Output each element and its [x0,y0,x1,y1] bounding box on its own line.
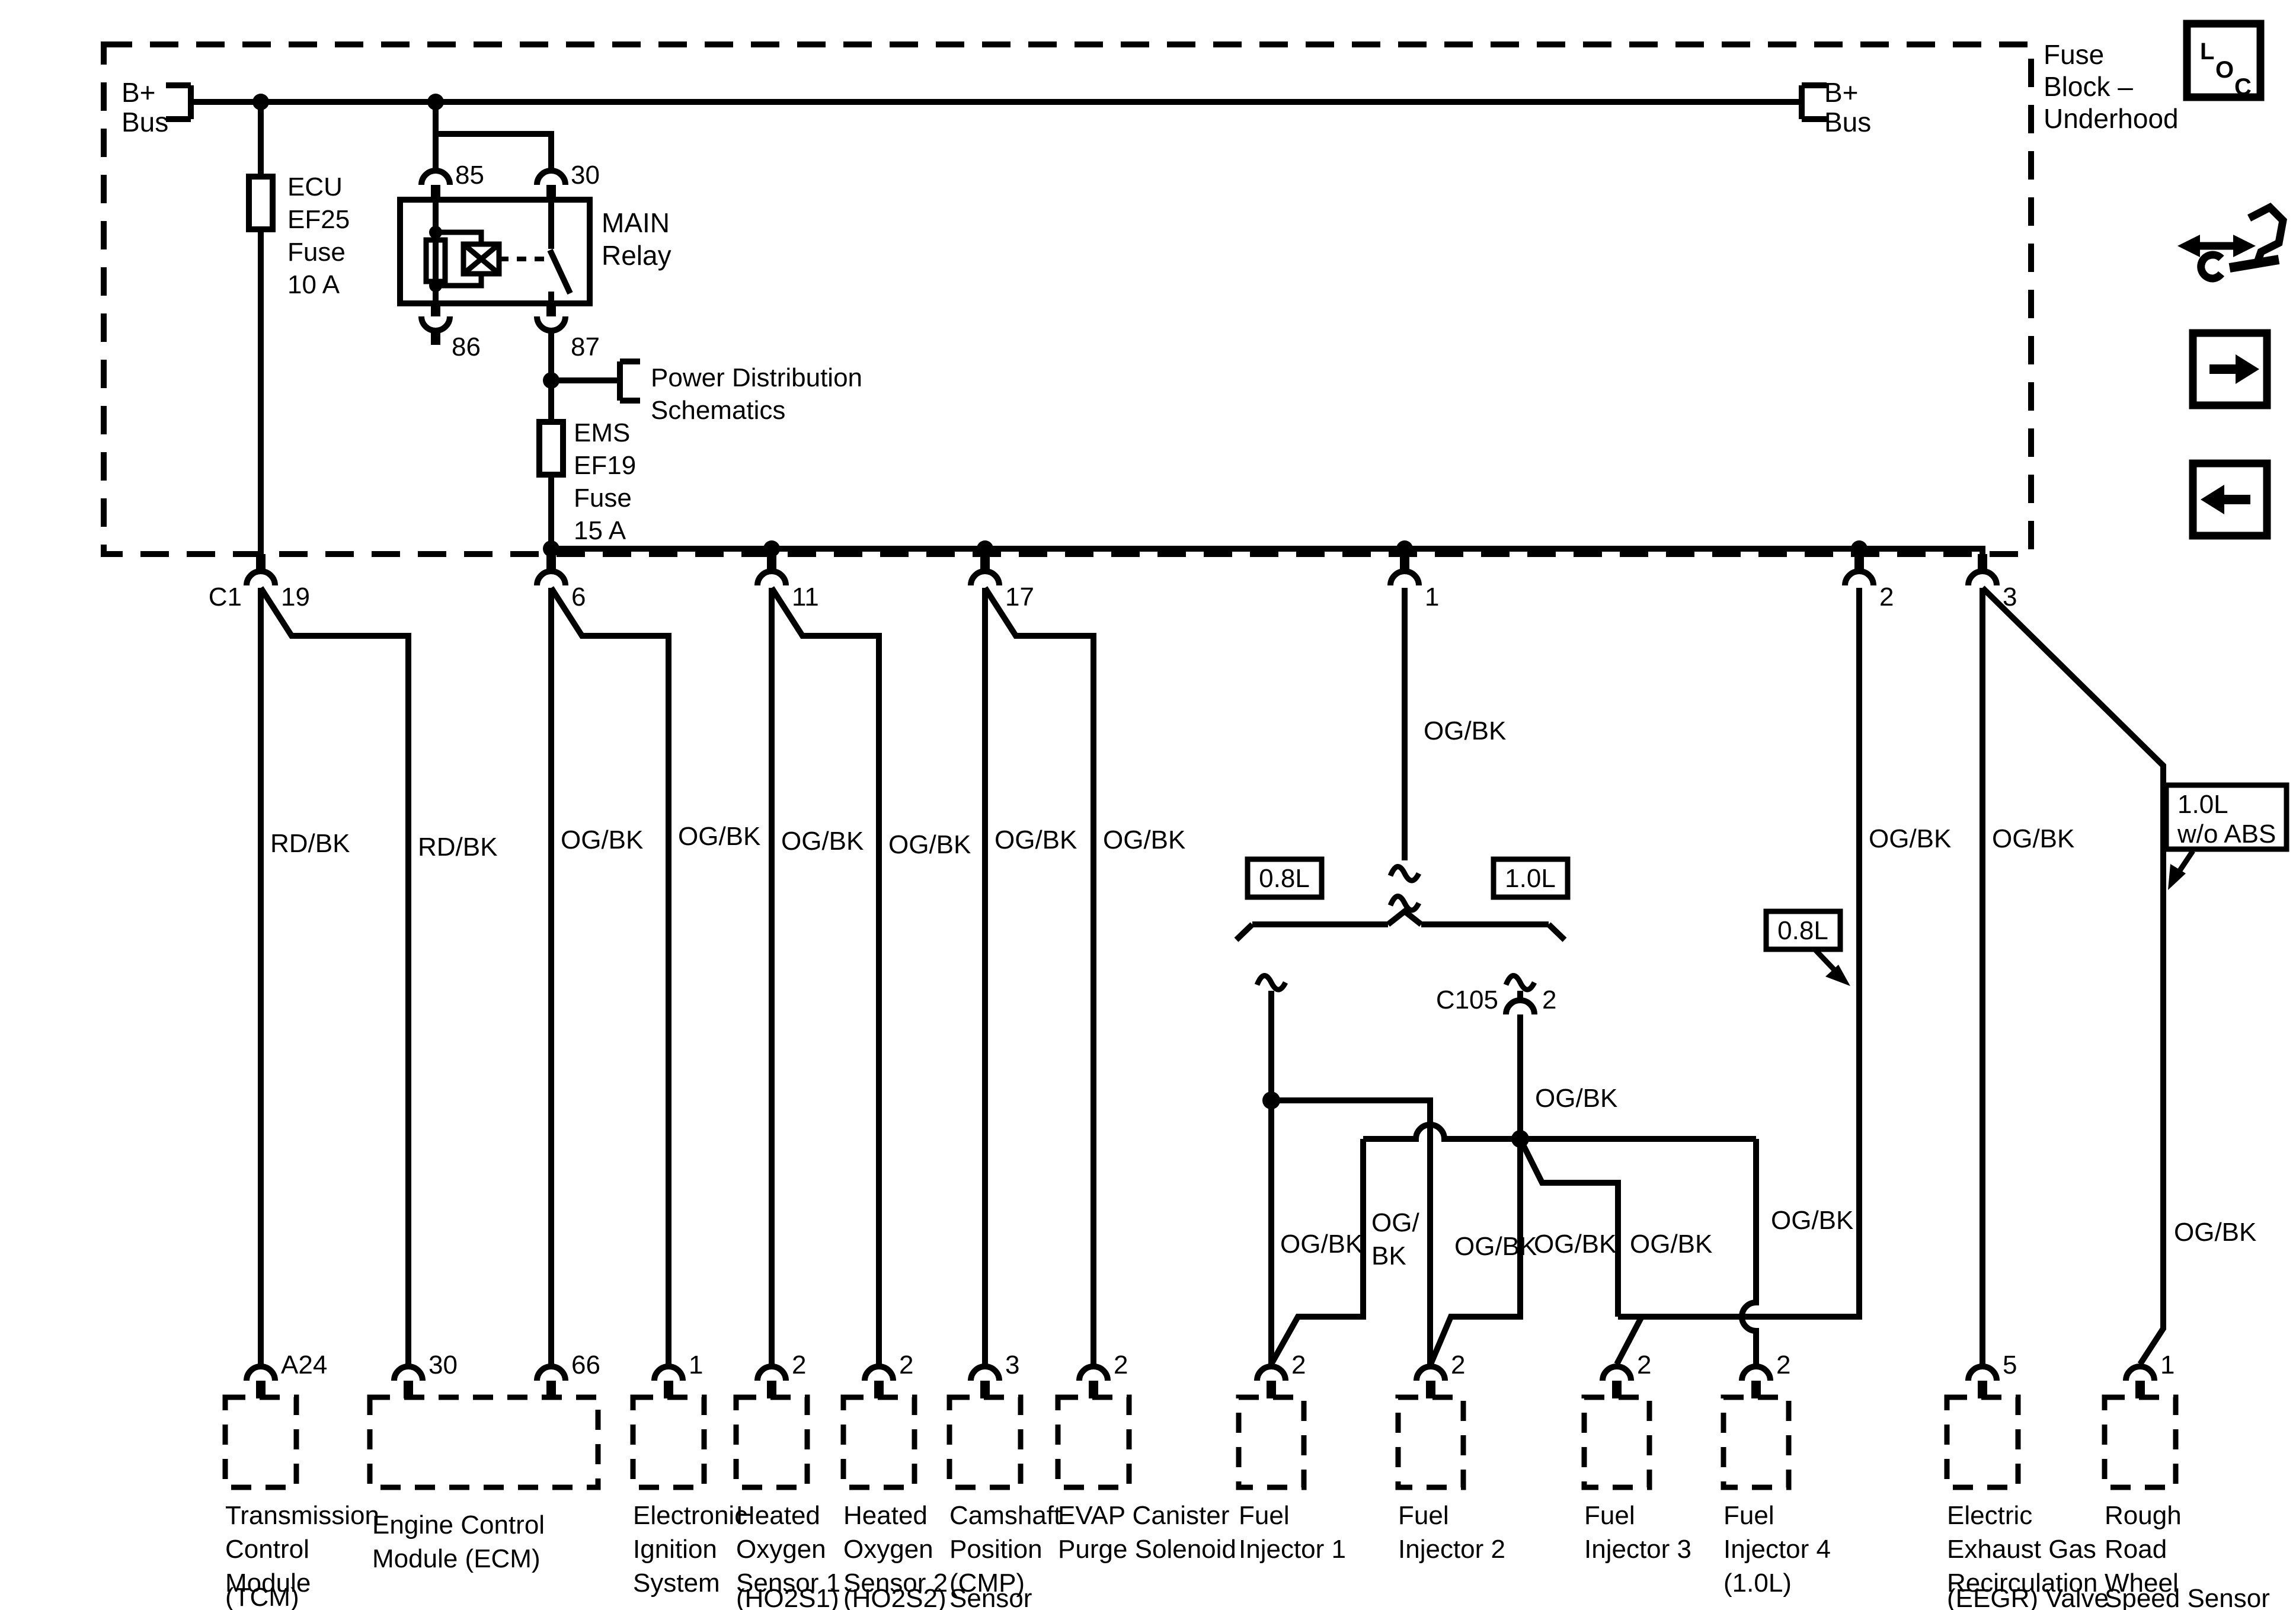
wire-10-distribution [1363,1125,1756,1139]
wire-ecm-30 [261,588,408,1364]
power-dist-label-1: Power Distribution [651,363,862,392]
connector-pin6 [537,571,565,585]
b-plus-left-bracket [166,85,191,119]
wire-color-c105: OG/BK [1535,1084,1617,1113]
eis-label-2: Ignition [633,1535,717,1564]
injector1-box [1239,1397,1304,1487]
ecm-pin66-connector [537,1366,565,1381]
ho2s1-label-2: Oxygen [736,1535,826,1564]
loc-letter-c: C [2234,74,2252,100]
forward-arrow-button[interactable] [2193,333,2267,405]
eegr-pin-connector [1968,1366,1997,1381]
ecm-label-2: Module (ECM) [372,1544,541,1573]
tcm-box [225,1397,296,1487]
cmp-box [949,1397,1021,1487]
injector2-pin-connector [1416,1366,1445,1381]
relay-pin87-connector [537,316,565,331]
ecm-pin30-label: 30 [428,1350,458,1379]
connector-c1-label: C1 [209,582,242,612]
power-distribution-reference: Power Distribution Schematics [551,361,862,425]
wire-color-rdbk-2: RD/BK [418,833,497,862]
pin17-label: 17 [1005,582,1034,612]
wire-eis [551,588,669,1364]
injector2-label-1: Fuel [1398,1501,1449,1530]
injector4-pin-label: 2 [1776,1350,1790,1379]
wire-color-inj2b: OG/BK [1534,1230,1616,1259]
variant-08-annotation: 0.8L [1766,911,1850,986]
injector1-pin-label: 2 [1291,1350,1306,1379]
ecm-pin66-label: 66 [571,1350,600,1379]
connector-pin19 [247,571,275,585]
loc-letter-o: O [2215,57,2234,83]
c105-label: C105 [1436,985,1498,1014]
ho2s2-label-4: (HO2S2) [843,1584,946,1610]
injector4-box [1723,1397,1789,1487]
injector4-label-1: Fuel [1723,1501,1774,1530]
ecm-label-1: Engine Control [372,1510,545,1539]
component-rough-road-sensor: 1 Rough Road Wheel Speed Sensor [2105,1350,2270,1610]
cmp-label-2: Position [949,1535,1043,1564]
wire-color-ogbk-4: OG/BK [888,830,971,859]
wire-color-inj4: OG/BK [1771,1206,1853,1235]
wire-color-inj2: OG/BK [1454,1232,1537,1261]
variant-split-brace [1236,911,1565,940]
connector-pin11 [757,571,786,585]
relay-switch-supply-wire [436,134,551,171]
component-ecm: 30 66 Engine Control Module (ECM) [370,1350,600,1573]
eis-label-1: Electronic [633,1501,747,1530]
wire-color-ogbk-6: OG/BK [1103,825,1185,854]
wire-color-pin2: OG/BK [1869,824,1951,853]
b-plus-right-bracket [1802,85,1827,119]
injector2-box [1398,1397,1463,1487]
fuse-block-title: Fuse Block – Underhood [2044,39,2179,134]
injector1-pin-connector [1257,1366,1285,1381]
wiring-diagram-canvas: Fuse Block – Underhood L O C B+ Bus B+ [0,0,2296,1610]
ho2s2-pin-label: 2 [899,1350,913,1379]
ems-fuse-label-4: 15 A [574,516,626,545]
relay-switch-blade [550,250,570,293]
wire-color-inj1: OG/BK [1280,1230,1363,1259]
eis-pin-label: 1 [689,1350,703,1379]
tcm-label-2: Control [225,1535,309,1564]
eis-box [633,1397,704,1487]
injector4-label-3: (1.0L) [1723,1569,1792,1598]
variant-08-label: 0.8L [1259,864,1310,893]
rough-road-pin-label: 1 [2160,1350,2175,1379]
ho2s1-pin-label: 2 [792,1350,806,1379]
break-symbol-branch-08 [1257,975,1285,990]
double-arrow-head-left [2177,235,2200,257]
pin1-label: 1 [1425,582,1439,612]
back-arrow-head [2201,485,2224,514]
ems-fuse-label-1: EMS [574,418,630,447]
variant-10-label: 1.0L [1505,864,1556,893]
injector-supply-circuit: OG/BK 0.8L 1.0L C105 2 OG/BK OG/BK OG/ B… [1236,588,1859,1364]
ho2s2-box [843,1397,914,1487]
ho2s2-label-1: Heated [843,1501,928,1530]
wire-color-rough-road: OG/BK [2174,1218,2256,1247]
wire-color-ogbk-3: OG/BK [781,827,864,856]
wire-evap [985,588,1093,1364]
ho2s1-pin-connector [757,1366,786,1381]
eis-label-3: System [633,1569,720,1598]
wiring-diagram-page: Fuse Block – Underhood L O C B+ Bus B+ [0,0,2296,1610]
variant-10-abs-line1: 1.0L [2177,790,2228,819]
wire-color-inj3: OG/BK [1630,1230,1712,1259]
relay-pin87-label: 87 [571,332,600,361]
injector3-label-1: Fuel [1584,1501,1635,1530]
ho2s1-label-1: Heated [736,1501,820,1530]
break-symbol-pin1 [1390,866,1419,881]
tcm-pin-connector [247,1366,275,1381]
ecu-fuse-label-2: EF25 [287,205,350,234]
ho2s1-box [736,1397,807,1487]
power-dist-bracket [551,361,640,401]
b-plus-left-line1: B+ [121,77,156,108]
eegr-pin-label: 5 [2003,1350,2017,1379]
ems-fuse: EMS EF19 Fuse 15 A [539,418,636,549]
component-ho2s1: 2 Heated Oxygen Sensor 1 (HO2S1) [736,1350,840,1610]
evap-label-1: EVAP Canister [1058,1501,1229,1530]
rough-road-label-1: Rough [2105,1501,2182,1530]
wrench-head [2201,255,2221,279]
rough-road-label-2: Road [2105,1535,2167,1564]
rough-road-box [2105,1397,2176,1487]
eegr-label-4: (EEGR) Valve [1947,1584,2109,1610]
connector-pin17 [971,571,999,585]
relay-pin30-label: 30 [571,161,600,190]
eegr-box [1947,1397,2018,1487]
pin19-label: 19 [281,582,310,612]
ecu-fuse-symbol [249,177,273,229]
connector-pin3 [1968,571,1997,585]
cmp-pin-label: 3 [1005,1350,1019,1379]
wire-color-ogbk-1: OG/BK [561,825,643,854]
left-group-wires [261,588,1093,1364]
ecu-fuse-label-3: Fuse [287,238,346,267]
evap-label-2: Purge Solenoid [1058,1535,1236,1564]
b-plus-left-line2: Bus [121,107,168,137]
variant-08-tag-label: 0.8L [1777,916,1828,945]
injector3-box [1584,1397,1649,1487]
ecm-pin30-connector [394,1366,423,1381]
injector2-label-2: Injector 2 [1398,1535,1505,1564]
wire-color-ogbk-5: OG/BK [994,825,1077,854]
fuse-block-label-line2: Block – [2044,71,2133,102]
wire-10-to-injector3 [1520,1139,1618,1317]
wire-color-pin3: OG/BK [1992,824,2074,853]
component-injector1: 2 Fuel Injector 1 [1239,1350,1346,1564]
b-plus-bus-left: B+ Bus [121,77,191,137]
relay-pin30-connector [537,171,565,185]
wire-rough-road [1982,588,2163,1364]
fuse-block-connector-row: C1 19 6 11 17 1 2 3 [209,549,2017,612]
evap-pin-label: 2 [1114,1350,1128,1379]
b-plus-bus-right: B+ Bus [1802,77,1871,137]
wire-10-to-injector4 [1742,1139,1756,1364]
c105-connector [1506,1000,1534,1014]
service-navigation-icon[interactable] [2177,207,2283,279]
ecu-fuse-label-1: ECU [287,172,343,201]
injector3-label-2: Injector 3 [1584,1535,1691,1564]
wire-color-inj1-jog-line2: BK [1371,1241,1406,1270]
ecu-fuse: ECU EF25 Fuse 10 A [249,102,350,568]
injector3-pin-label: 2 [1637,1350,1651,1379]
back-arrow-button[interactable] [2193,463,2267,536]
wire-ho2s2 [772,588,879,1364]
wire-color-inj1-jog-line1: OG/ [1371,1208,1419,1237]
ho2s2-pin-connector [865,1366,893,1381]
connector-pin1 [1390,571,1419,585]
component-eegr: 5 Electric Exhaust Gas Recirculation (EE… [1947,1350,2109,1610]
injector4-label-2: Injector 4 [1723,1535,1831,1564]
component-injector3: 2 Fuel Injector 3 [1584,1350,1691,1564]
relay-pin86-connector [421,316,450,331]
b-plus-right-line1: B+ [1824,77,1859,108]
relay-pin85-connector [421,171,450,185]
ecm-box [370,1397,598,1487]
component-evap: 2 EVAP Canister Purge Solenoid [1058,1350,1236,1564]
injector2-pin-label: 2 [1451,1350,1465,1379]
cmp-label-4: Sensor [949,1584,1032,1610]
wire-color-rdbk-1: RD/BK [270,829,350,858]
eegr-label-1: Electric [1947,1501,2032,1530]
rough-road-pin-connector [2126,1366,2154,1381]
variant-10-abs-annotation: 1.0L w/o ABS [2166,785,2287,890]
ems-fuse-label-2: EF19 [574,451,636,480]
break-symbol-branch-10 [1506,975,1534,990]
pin2-label: 2 [1879,582,1894,612]
cmp-pin-connector [971,1366,999,1381]
loc-icon: L O C [2187,24,2260,100]
variant-10-abs-line2: w/o ABS [2177,820,2276,849]
injector4-pin-connector [1742,1366,1770,1381]
ho2s1-label-4: (HO2S1) [736,1584,839,1610]
injector3-pin-connector [1603,1366,1631,1381]
relay-name-line2: Relay [602,240,671,271]
ems-fuse-label-3: Fuse [574,484,632,513]
rough-road-label-4: Speed Sensor [2105,1584,2270,1610]
relay-pin85-label: 85 [455,161,484,190]
main-relay: 85 30 MAIN Relay 86 87 [400,102,671,361]
double-arrow-head-right [2233,235,2256,257]
forward-arrow-head [2236,354,2259,384]
fuse-block-label-line3: Underhood [2044,103,2179,134]
tcm-label-4: (TCM) [225,1583,299,1610]
component-injector2: 2 Fuel Injector 2 [1398,1350,1505,1564]
fuse-block-boundary [104,44,2031,554]
tcm-pin-label: A24 [281,1350,327,1379]
component-ho2s2: 2 Heated Oxygen Sensor 2 (HO2S2) [843,1350,948,1610]
injector1-label-1: Fuel [1239,1501,1290,1530]
loc-letter-l: L [2200,39,2214,65]
wire-color-pin1: OG/BK [1424,716,1506,745]
relay-name-line1: MAIN [602,207,670,238]
ecu-fuse-label-4: 10 A [287,270,340,299]
power-dist-label-2: Schematics [651,396,785,425]
ems-fuse-symbol [539,422,563,475]
wire-c105-to-injector2 [1431,1014,1520,1364]
fuse-block-label-line1: Fuse [2044,39,2104,70]
right-group-wires: OG/BK OG/BK OG/BK 0.8L 1.0L w/o ABS [1766,588,2287,1364]
evap-box [1058,1397,1129,1487]
cmp-label-1: Camshaft [949,1501,1061,1530]
evap-pin-connector [1079,1366,1108,1381]
relay-pin86-label: 86 [452,332,481,361]
pin11-label: 11 [792,582,819,612]
component-cmp: 3 Camshaft Position (CMP) Sensor [949,1350,1061,1610]
relay-suppressor-x [463,244,499,274]
wire-color-ogbk-2: OG/BK [678,822,760,851]
tcm-label-1: Transmission [225,1501,379,1530]
ho2s2-label-2: Oxygen [843,1535,933,1564]
component-eis: 1 Electronic Ignition System [633,1350,747,1598]
component-tcm: A24 Transmission Control Module (TCM) [225,1350,379,1610]
eegr-label-2: Exhaust Gas [1947,1535,2096,1564]
wrench-handle [2230,260,2279,268]
pin6-label: 6 [571,582,586,612]
connector-pin2 [1845,571,1873,585]
injector1-label-2: Injector 1 [1239,1535,1346,1564]
eis-pin-connector [654,1366,683,1381]
c105-pin-label: 2 [1542,985,1556,1014]
component-injector4: 2 Fuel Injector 4 (1.0L) [1723,1350,1831,1598]
b-plus-right-line2: Bus [1824,107,1871,137]
